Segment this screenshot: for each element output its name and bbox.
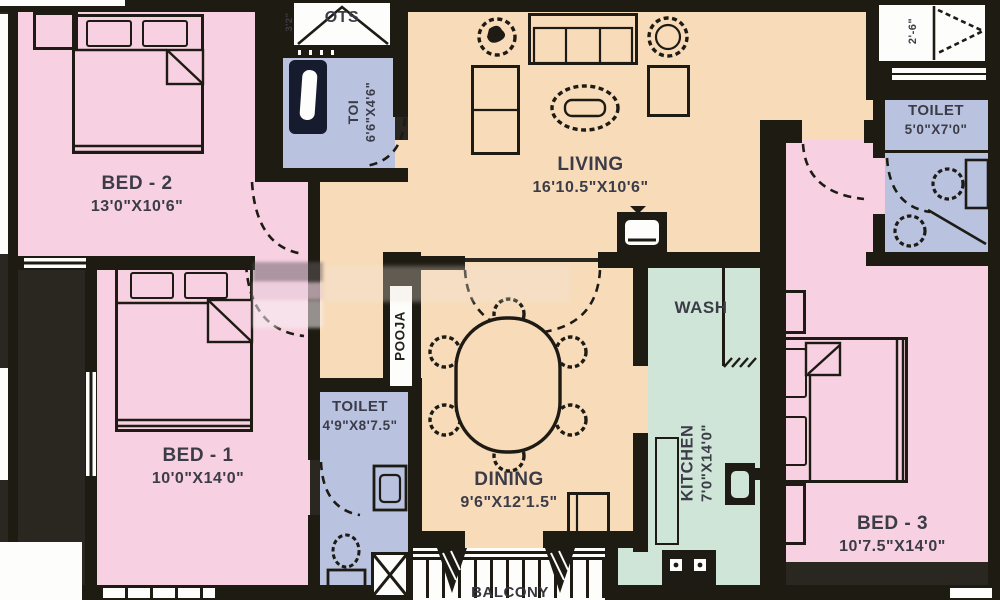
balcony-name: BALCONY (471, 584, 549, 600)
label-ots-side: 3'2" (284, 12, 296, 31)
terrace-depth-value: 2'-6" (907, 18, 919, 44)
label-toi-top: TOI 6'6"X4'6" (345, 82, 379, 143)
watermark-blur-2 (253, 282, 323, 300)
door-arc-bed3 (803, 144, 864, 199)
toi-heater-icon (289, 60, 327, 134)
shaft-x (373, 554, 407, 596)
round-chair-icon (649, 18, 687, 56)
ots-name: OTS (325, 9, 359, 26)
dining-table (456, 318, 560, 452)
plant-icon (479, 19, 515, 55)
living-dims: 16'10.5"X10'6" (498, 178, 683, 199)
toilet-bed3-name: TOILET (886, 101, 986, 121)
label-ots: OTS (303, 8, 381, 29)
toilet-bed1-wc-icon (328, 535, 365, 592)
label-living: LIVING 16'10.5"X10'6" (498, 153, 683, 198)
label-toilet-bed1: TOILET 4'9"X8'7.5" (314, 397, 406, 434)
kitchen-name: KITCHEN (677, 424, 698, 502)
stove-icon (662, 550, 716, 588)
bed1-fold (208, 300, 252, 342)
label-pooja: POOJA (393, 311, 410, 361)
label-bed1: BED - 1 10'0"X14'0" (108, 444, 288, 489)
kitchen-dims: 7'0"X14'0" (698, 424, 717, 502)
bed3-fold (806, 343, 840, 375)
toilet-bed3-basin-icon (933, 160, 988, 208)
floor-plan: BED - 2 13'0"X10'6" BED - 1 10'0"X14'0" … (0, 0, 1000, 600)
bed1-dims: 10'0"X14'0" (108, 469, 288, 490)
dining-dims: 9'6"X12'1.5" (428, 493, 590, 514)
door-arc-toilet-bed3 (887, 158, 930, 212)
toi-top-name: TOI (345, 82, 363, 143)
label-bed2: BED - 2 13'0"X10'6" (52, 172, 222, 217)
bed3-name: BED - 3 (800, 512, 985, 537)
pooja-name: POOJA (393, 311, 408, 361)
coffee-table-icon (552, 86, 618, 130)
bed1-name: BED - 1 (108, 444, 288, 469)
toi-top-dims: 6'6"X4'6" (363, 82, 379, 143)
toilet-bed1-dims: 4'9"X8'7.5" (314, 417, 406, 435)
terrace-zigzag (934, 6, 983, 60)
door-arc-toilet-bed1 (321, 462, 360, 515)
toilet-bed3-wc-icon (895, 210, 986, 246)
label-kitchen: KITCHEN 7'0"X14'0" (677, 424, 716, 502)
bed2-name: BED - 2 (52, 172, 222, 197)
label-dining: DINING 9'6"X12'1.5" (428, 468, 590, 513)
toilet-bed1-name: TOILET (314, 397, 406, 417)
watermark-blur-4 (325, 266, 570, 302)
sofa-cushions (534, 28, 632, 63)
bed2-fold (167, 50, 203, 84)
label-toilet-bed3: TOILET 5'0"X7'0" (886, 101, 986, 138)
tv-unit-icon (617, 206, 667, 253)
bed3-dims: 10'7.5"X14'0" (800, 537, 985, 558)
wash-hatch (724, 358, 756, 367)
bed2-dims: 13'0"X10'6" (52, 197, 222, 218)
kitchen-sink-icon (725, 463, 761, 505)
label-bed3: BED - 3 10'7.5"X14'0" (800, 512, 985, 557)
label-balcony: BALCONY (450, 583, 570, 600)
toilet-bed1-basin-icon (374, 466, 406, 510)
dining-name: DINING (428, 468, 590, 493)
door-arc-bed2 (252, 182, 304, 254)
living-name: LIVING (498, 153, 683, 178)
label-terrace-depth: 2'-6" (907, 18, 921, 44)
label-wash: WASH (655, 297, 747, 319)
wash-name: WASH (675, 298, 728, 317)
watermark-blur-3 (253, 300, 323, 328)
toilet-bed3-dims: 5'0"X7'0" (886, 121, 986, 139)
watermark-blur-1 (253, 262, 323, 282)
ots-side-value: 3'2" (284, 12, 295, 31)
